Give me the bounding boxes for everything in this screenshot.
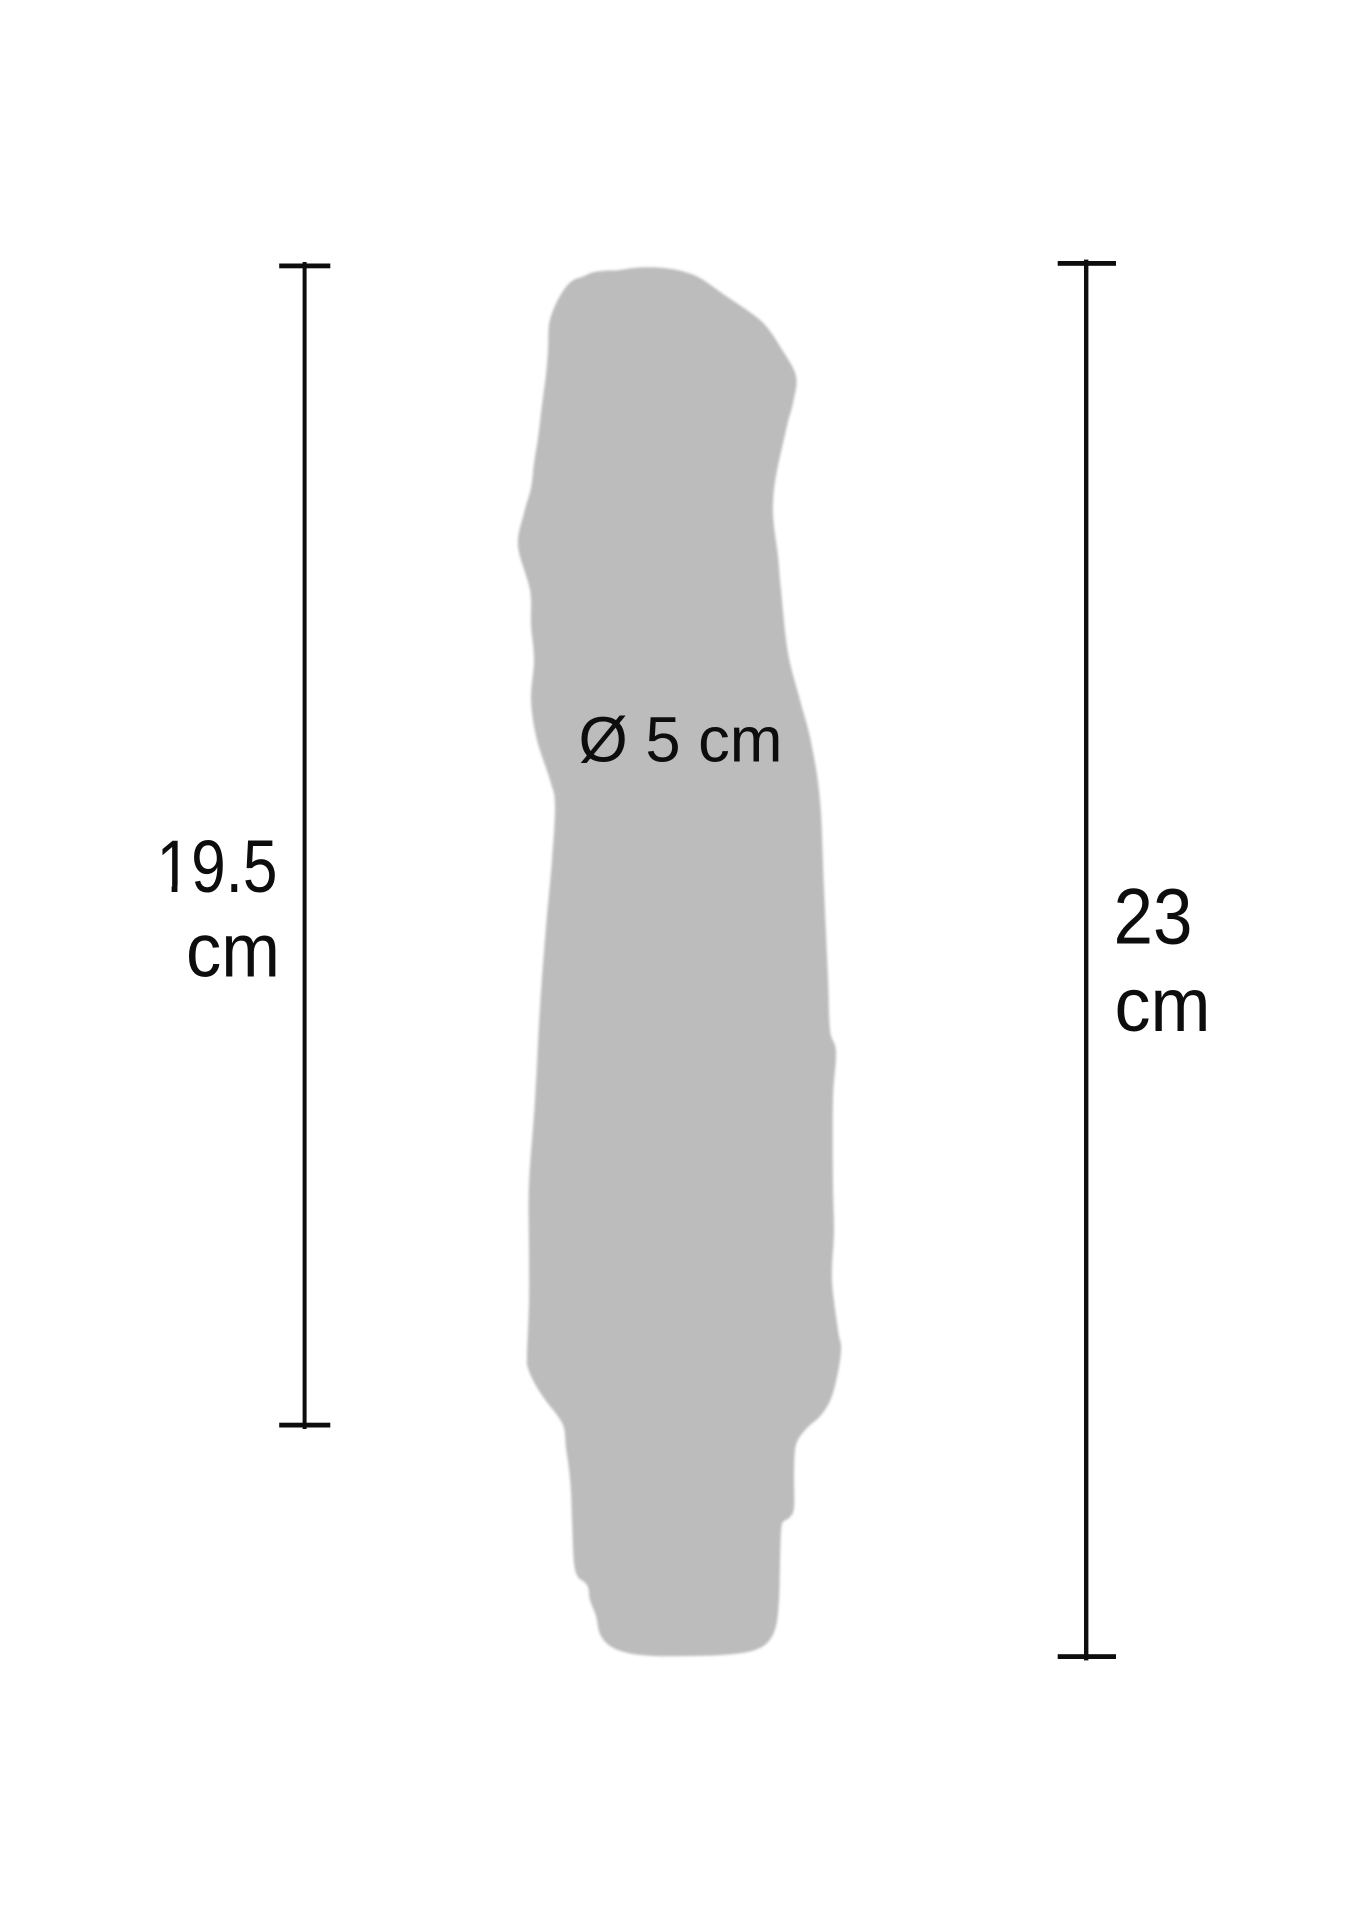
svg-text:Ø 5 cm: Ø 5 cm: [579, 704, 783, 776]
svg-text:cm: cm: [186, 909, 280, 994]
svg-text:23: 23: [1114, 872, 1193, 961]
svg-text:19.5: 19.5: [157, 825, 278, 908]
svg-text:cm: cm: [1115, 963, 1211, 1048]
